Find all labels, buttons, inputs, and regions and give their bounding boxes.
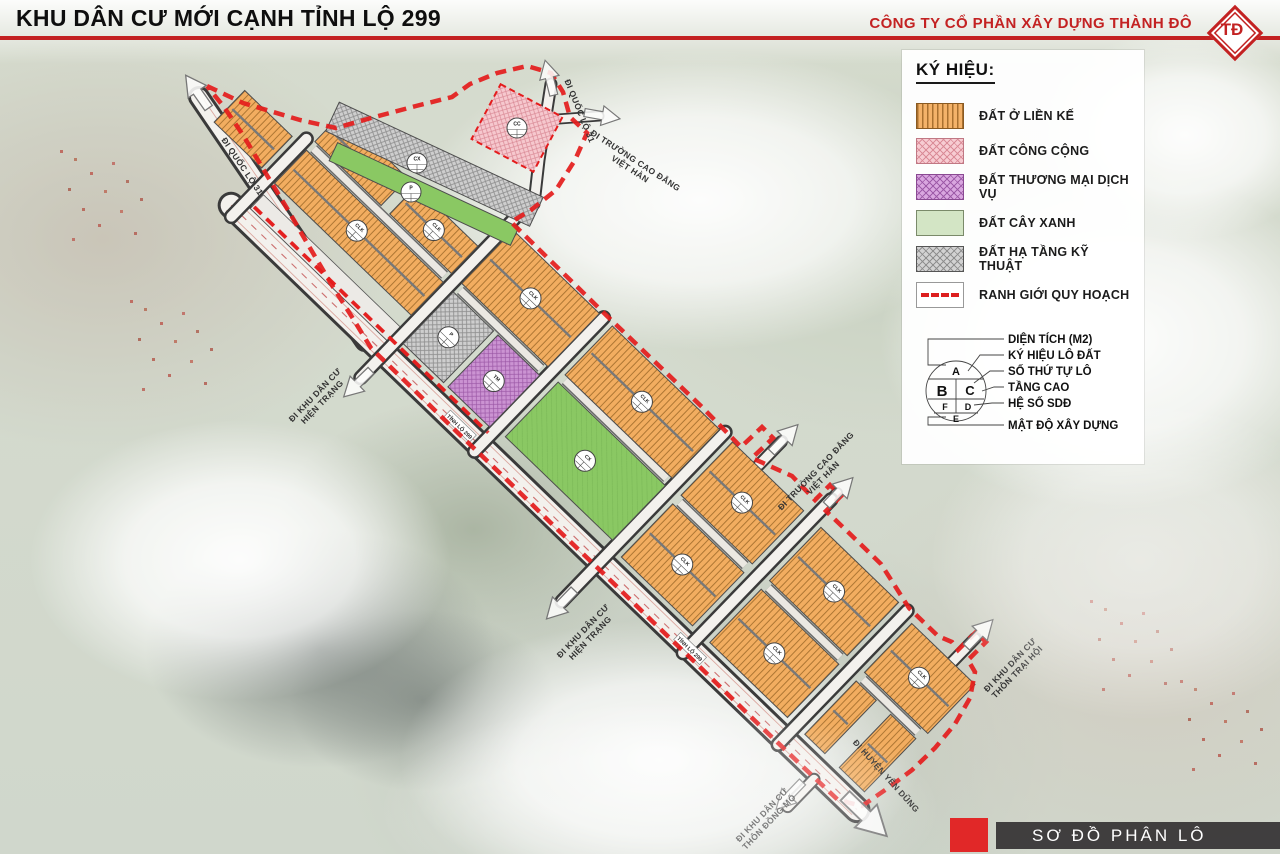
svg-text:DIỆN TÍCH (M2): DIỆN TÍCH (M2)	[1008, 333, 1093, 346]
svg-text:CX: CX	[414, 157, 422, 163]
svg-text:SỐ THỨ TỰ LÔ: SỐ THỨ TỰ LÔ	[1008, 364, 1092, 378]
legend-title: KÝ HIỆU:	[916, 60, 995, 84]
footer-red-square	[950, 818, 988, 852]
green-swatch	[916, 210, 964, 236]
legend-item-ha-tang: ĐẤT HẠ TẦNG KỸ THUẬT	[916, 245, 1132, 273]
svg-text:CC: CC	[513, 122, 521, 128]
lot-badge-public: CC	[507, 118, 527, 138]
orange-hatch-swatch	[916, 103, 964, 129]
header-rule	[0, 36, 1280, 40]
svg-text:MẬT ĐỘ XÂY DỰNG: MẬT ĐỘ XÂY DỰNG	[1008, 419, 1118, 432]
company-logo: TĐ	[1206, 4, 1258, 56]
legend-item-cong-cong: ĐẤT CÔNG CỘNG	[916, 138, 1132, 164]
legend-item-ranh-gioi: RANH GIỚI QUY HOẠCH	[916, 282, 1132, 308]
pink-crosshatch-swatch	[916, 138, 964, 164]
lot-symbol-diagram: A B C D E F DIỆN TÍCH (M2) KÝ HIỆU LÔ ĐẤ…	[916, 327, 1132, 447]
alleys	[314, 143, 924, 732]
svg-text:ĐI TRƯỜNG CAO ĐẲNG: ĐI TRƯỜNG CAO ĐẲNG	[589, 127, 683, 193]
footer-bar: SƠ ĐỒ PHÂN LÔ	[996, 822, 1280, 849]
svg-text:E: E	[953, 414, 959, 424]
legend-item-cay-xanh: ĐẤT CÂY XANH	[916, 210, 1132, 236]
svg-text:HỆ SỐ SDĐ: HỆ SỐ SDĐ	[1008, 396, 1071, 410]
logo-text: TĐ	[1206, 4, 1258, 56]
svg-text:B: B	[937, 383, 948, 400]
label-existing-left: ĐI KHU DÂN CƯHIỆN TRẠNG	[286, 365, 351, 431]
legend-item-lien-ke: ĐẤT Ở LIỀN KẾ	[916, 103, 1132, 129]
svg-text:A: A	[952, 366, 960, 378]
company-name: CÔNG TY CỔ PHẦN XÂY DỰNG THÀNH ĐÔ	[869, 15, 1192, 32]
gray-crosshatch-swatch	[916, 246, 964, 272]
purple-crosshatch-swatch	[916, 174, 964, 200]
page-title: KHU DÂN CƯ MỚI CẠNH TỈNH LỘ 299	[16, 5, 441, 32]
label-college-top: ĐI TRƯỜNG CAO ĐẲNGVIỆT HÀN	[583, 127, 683, 202]
svg-text:TẦNG CAO: TẦNG CAO	[1008, 381, 1069, 394]
svg-text:KÝ HIỆU LÔ ĐẤT: KÝ HIỆU LÔ ĐẤT	[1008, 349, 1101, 362]
lot-badge-green: CX	[407, 153, 427, 173]
legend-panel: KÝ HIỆU: ĐẤT Ở LIỀN KẾ ĐẤT CÔNG CỘNG ĐẤT…	[902, 50, 1144, 464]
plan-canvas: TỈNH LỘ 299 TỈNH LỘ 299 CLK CLK CLK	[0, 0, 1280, 854]
legend-item-thuong-mai: ĐẤT THƯƠNG MẠI DỊCH VỤ	[916, 173, 1132, 201]
lot-badge-infrastructure: P	[401, 182, 421, 202]
svg-text:F: F	[942, 402, 948, 412]
svg-text:C: C	[965, 383, 975, 398]
red-dashed-swatch	[916, 282, 964, 308]
svg-text:D: D	[965, 402, 972, 412]
